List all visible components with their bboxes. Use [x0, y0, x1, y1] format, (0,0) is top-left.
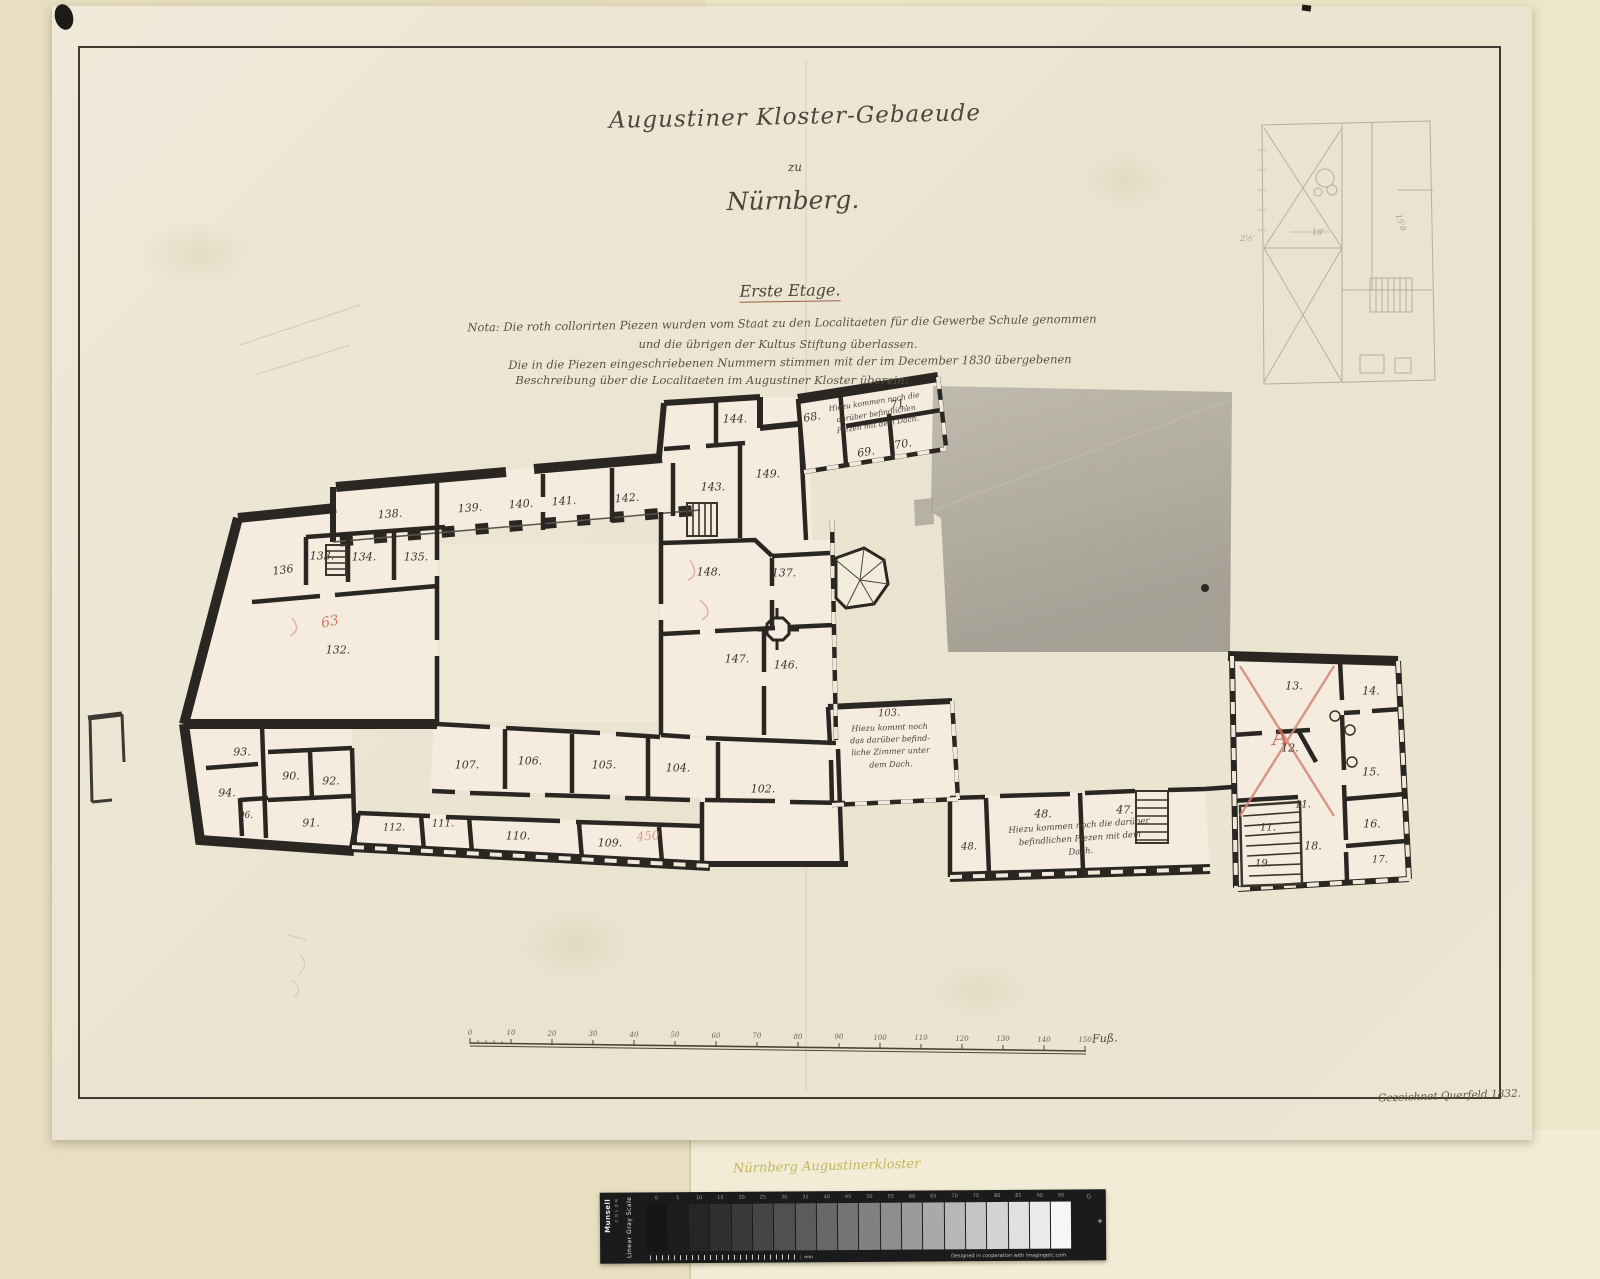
swatch-number: 20: [731, 1195, 752, 1204]
room-label: 112.: [383, 823, 405, 834]
room-label: 140.: [508, 497, 533, 512]
room-label: 11.: [1295, 800, 1311, 811]
nota-line4: Beschreibung über die Localitaeten im Au…: [515, 373, 908, 387]
room-label: 107.: [455, 759, 480, 772]
gray-swatch: [646, 1204, 667, 1251]
title-line3: Nürnberg.: [726, 185, 859, 216]
swatch-number: 45: [837, 1194, 858, 1203]
inset-dim-label: 18': [1312, 228, 1324, 237]
munsell-swatch-section: 0 5 10 15 20 25 30 35 40 45 50 55 60 65 …: [646, 1189, 1072, 1263]
room-label: 137.: [772, 567, 797, 580]
inset-dim-label: 2½': [1240, 234, 1255, 243]
gray-swatch: [881, 1203, 902, 1250]
swatch-number: 0: [646, 1195, 667, 1204]
room-label: 106.: [518, 755, 543, 768]
room-label: 69.: [856, 444, 875, 460]
swatch-number: 35: [795, 1194, 816, 1203]
room-label: 109.: [598, 837, 623, 850]
gray-swatch: [838, 1203, 859, 1250]
room-label: 149.: [756, 468, 781, 481]
scale-tick: 140: [1037, 1036, 1050, 1044]
courtyard: [440, 545, 658, 722]
title-line2: zu: [788, 160, 803, 174]
mm-label: mm: [804, 1255, 813, 1260]
red-mark-450: 450: [636, 828, 660, 844]
scale-tick: 120: [955, 1035, 968, 1043]
room-label: 144.: [723, 413, 748, 426]
mm-ruler: [650, 1254, 800, 1260]
gray-swatch: [1008, 1202, 1029, 1249]
munsell-credit: Designed in cooperation with imagingetc.…: [951, 1253, 1066, 1260]
scale-tick: 10: [507, 1029, 516, 1037]
room-label: 146.: [774, 659, 799, 672]
munsell-brand-section: Munsell C O L O R Linear Gray Scale: [600, 1192, 646, 1263]
room-label: 139.: [457, 501, 482, 516]
inset-sketch: [1258, 121, 1435, 384]
scale-tick: 150: [1078, 1036, 1091, 1044]
room-label: 17.: [1372, 855, 1388, 866]
room-label: 132.: [326, 644, 351, 657]
room-label: 90.: [282, 770, 300, 783]
room-label: 13.: [1285, 680, 1303, 693]
scale-tick: 50: [671, 1031, 680, 1039]
gray-swatch: [944, 1202, 965, 1249]
gray-swatch: [817, 1203, 838, 1250]
scale-tick: 40: [630, 1031, 639, 1039]
swatch-number: 50: [859, 1194, 880, 1203]
scale-tick: 80: [794, 1033, 803, 1041]
room-label: 14.: [1362, 685, 1380, 698]
scale-unit-label: Fuß.: [1092, 1031, 1118, 1045]
swatch-number: 95: [1050, 1192, 1071, 1201]
swatch-number: 85: [1008, 1193, 1029, 1202]
gray-swatch: [668, 1204, 689, 1251]
scale-tick: 130: [996, 1035, 1009, 1043]
swatch-number: 65: [923, 1193, 944, 1202]
scale-tick: 70: [753, 1032, 762, 1040]
munsell-g-section: G +: [1072, 1189, 1106, 1260]
room-label: 48.: [961, 842, 977, 853]
gray-swatch: [859, 1203, 880, 1250]
swatch-number: 60: [901, 1194, 922, 1203]
room-label: 141.: [551, 494, 576, 509]
gray-swatch: [966, 1202, 987, 1249]
room-label: 133.: [310, 550, 335, 563]
gray-swatch: [1051, 1201, 1072, 1248]
registration-mark: +: [1097, 1217, 1103, 1225]
room-label: 143.: [701, 481, 726, 494]
room-label: 91.: [302, 817, 320, 830]
scale-tick: 90: [835, 1033, 844, 1041]
gray-swatch: [923, 1202, 944, 1249]
gray-swatch: [753, 1204, 774, 1251]
swatch-number: 25: [752, 1195, 773, 1204]
room-label: 16.: [1363, 818, 1381, 831]
swatch-number: 15: [710, 1195, 731, 1204]
floor-heading: Erste Etage.: [739, 280, 840, 302]
room-label: 138.: [377, 507, 402, 522]
gray-wash-patch: [914, 386, 1232, 652]
gray-swatch: [1030, 1202, 1051, 1249]
room-label: 70.: [893, 436, 912, 452]
swatch-number: 40: [816, 1194, 837, 1203]
munsell-brand-sub: C O L O R: [614, 1199, 619, 1223]
munsell-scale-label: Linear Gray Scale: [626, 1197, 633, 1259]
gray-swatch: [795, 1203, 816, 1250]
gray-swatch: [902, 1203, 923, 1250]
scale-tick: 100: [873, 1034, 886, 1042]
scale-tick: 110: [914, 1034, 927, 1042]
gray-swatch: [689, 1204, 710, 1251]
room-label: 94.: [218, 787, 236, 800]
corner-marks: [52, 2, 1311, 32]
room-label: 148.: [697, 566, 722, 579]
swatch-number: 90: [1029, 1193, 1050, 1202]
spiral-stair: [836, 548, 888, 608]
note-103-block: 103. Hiezu kommt noch das darüber befind…: [825, 704, 955, 773]
room-label: 142.: [614, 491, 639, 506]
swatch-number: 10: [688, 1195, 709, 1204]
room-label: 19.: [1255, 859, 1271, 870]
room-label: 18.: [1304, 840, 1322, 853]
munsell-gray-scale-bar: Munsell C O L O R Linear Gray Scale 0 5 …: [600, 1189, 1106, 1264]
room-label: 135.: [404, 551, 429, 564]
red-mark-a: A: [1271, 725, 1289, 752]
gray-swatch: [732, 1204, 753, 1251]
swatch-number: 70: [944, 1193, 965, 1202]
swatch-number: 75: [965, 1193, 986, 1202]
room-label: 93.: [233, 746, 251, 759]
room-label: 47.: [1116, 804, 1134, 817]
swatch-number: 30: [774, 1194, 795, 1203]
munsell-brand: Munsell: [604, 1199, 612, 1233]
scale-tick: 30: [589, 1030, 598, 1038]
g-label: G: [1086, 1193, 1091, 1200]
gray-swatch: [987, 1202, 1008, 1249]
room-label: 134.: [352, 551, 377, 564]
room-label: 110.: [506, 830, 531, 843]
room-label: 102.: [751, 783, 776, 796]
room-label: 111.: [432, 819, 454, 830]
room-label: 92.: [322, 775, 340, 788]
nota-line2: und die übrigen der Kultus Stiftung über…: [639, 337, 918, 351]
room-label: 15.: [1362, 766, 1380, 779]
scale-bar: [470, 1038, 1086, 1054]
scale-tick: 20: [548, 1030, 557, 1038]
swatch-number: 5: [667, 1195, 688, 1204]
room-label: 104.: [666, 762, 691, 775]
scale-tick: 60: [712, 1032, 721, 1040]
edge-fragment: [88, 714, 124, 802]
swatch-number: 55: [880, 1194, 901, 1203]
munsell-swatches: [646, 1201, 1072, 1251]
archival-scan-page: { "document": { "title_line1": "Augustin…: [0, 0, 1600, 1279]
room-label: 96.: [239, 811, 253, 821]
room-label: 48.: [1034, 808, 1052, 821]
room-label: 11.: [1260, 823, 1276, 834]
scale-tick: 0: [468, 1029, 472, 1037]
gray-swatch: [710, 1204, 731, 1251]
room-label: 147.: [725, 653, 750, 666]
room-label: 105.: [592, 759, 617, 772]
swatch-number: 80: [987, 1193, 1008, 1202]
gray-swatch: [774, 1203, 795, 1250]
